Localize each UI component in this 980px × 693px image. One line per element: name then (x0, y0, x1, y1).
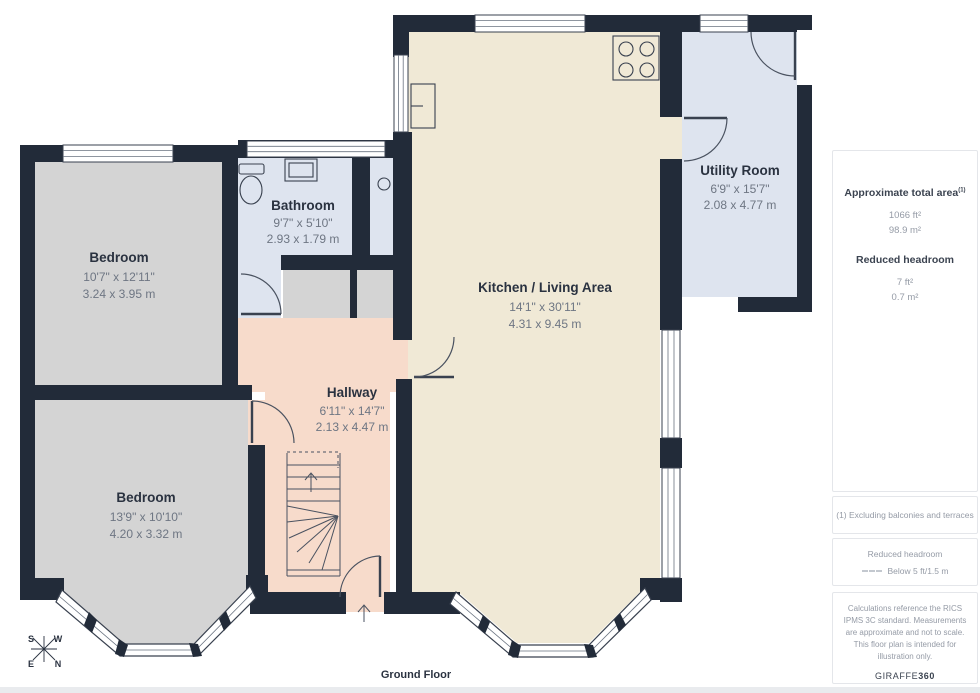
total-area-title: Approximate total area(1) (833, 187, 977, 199)
svg-text:Hallway: Hallway (327, 385, 378, 400)
room-label-bedroom-1: Bedroom 10'7" x 12'11" 3.24 x 3.95 m (83, 250, 156, 301)
room-fill-cupboard-2 (357, 270, 398, 318)
compass-w: W (54, 634, 63, 644)
disclaimer-panel: Calculations reference the RICS IPMS 3C … (832, 592, 978, 684)
svg-text:2.13 x 4.47 m: 2.13 x 4.47 m (316, 420, 389, 434)
room-label-utility: Utility Room 6'9" x 15'7" 2.08 x 4.77 m (700, 163, 780, 212)
window-bedroom-1-top (63, 145, 173, 162)
room-fills (35, 32, 797, 644)
room-fill-frontdoor-patch (346, 592, 384, 612)
svg-text:Bathroom: Bathroom (271, 198, 335, 213)
svg-text:10'7" x 12'11": 10'7" x 12'11" (83, 270, 155, 284)
window-kitchen-top (475, 15, 585, 32)
reduced-headroom-dash-icon (862, 570, 882, 572)
footnote-panel: (1) Excluding balconies and terraces (832, 496, 978, 534)
total-area-ft: 1066 ft² (833, 208, 977, 223)
window-bathroom-top (247, 141, 385, 157)
svg-text:Kitchen / Living Area: Kitchen / Living Area (478, 280, 612, 295)
room-fill-bathroom-nook (238, 255, 281, 318)
svg-text:2.93 x 1.79 m: 2.93 x 1.79 m (267, 232, 340, 246)
area-summary-panel: Approximate total area(1) 1066 ft² 98.9 … (832, 150, 978, 492)
reduced-headroom-m: 0.7 m² (833, 290, 977, 305)
svg-text:2.08 x 4.77 m: 2.08 x 4.77 m (704, 198, 777, 212)
window-kitchen-right-lower (662, 468, 680, 578)
room-fill-cupboard-1 (283, 270, 350, 318)
disclaimer-text: Calculations reference the RICS IPMS 3C … (842, 603, 968, 663)
room-fill-hallway-corridor (238, 318, 398, 392)
bottom-edge-strip (0, 687, 980, 693)
svg-text:6'9" x 15'7": 6'9" x 15'7" (710, 182, 769, 196)
svg-text:6'11" x 14'7": 6'11" x 14'7" (320, 404, 385, 418)
footnote-marker: (1) (958, 188, 965, 194)
room-label-bathroom: Bathroom 9'7" x 5'10" 2.93 x 1.79 m (267, 198, 340, 246)
reduced-headroom-title: Reduced headroom (833, 254, 977, 266)
svg-text:4.20 x 3.32 m: 4.20 x 3.32 m (110, 527, 183, 541)
compass-s: S (28, 634, 34, 644)
compass-n: N (55, 659, 62, 669)
reduced-headroom-ft: 7 ft² (833, 275, 977, 290)
brand-logo: GIRAFFE360 (842, 670, 968, 684)
footnote-text: (1) Excluding balconies and terraces (836, 510, 974, 520)
svg-text:4.31 x 9.45 m: 4.31 x 9.45 m (509, 317, 582, 331)
room-fill-utility-door-patch (658, 117, 682, 159)
room-label-bedroom-2: Bedroom 13'9" x 10'10" 4.20 x 3.32 m (110, 490, 183, 541)
svg-text:9'7" x 5'10": 9'7" x 5'10" (273, 216, 332, 230)
window-utility-top (700, 15, 748, 32)
floorplan-page: Bedroom 10'7" x 12'11" 3.24 x 3.95 m Bat… (0, 0, 980, 693)
legend-panel: Reduced headroom Below 5 ft/1.5 m (832, 538, 978, 586)
svg-text:Utility Room: Utility Room (700, 163, 780, 178)
svg-text:Bedroom: Bedroom (89, 250, 148, 265)
compass-icon: S W E N (28, 634, 63, 669)
compass-e: E (28, 659, 34, 669)
window-kitchen-right-upper (662, 330, 680, 438)
total-area-m: 98.9 m² (833, 223, 977, 238)
svg-text:3.24 x 3.95 m: 3.24 x 3.95 m (83, 287, 156, 301)
svg-text:Bedroom: Bedroom (116, 490, 175, 505)
legend-title: Reduced headroom (833, 549, 977, 559)
legend-item: Below 5 ft/1.5 m (888, 566, 949, 576)
window-kitchen-left (394, 55, 408, 132)
svg-text:14'1" x 30'11": 14'1" x 30'11" (509, 300, 581, 314)
svg-text:13'9" x 10'10": 13'9" x 10'10" (110, 510, 183, 524)
floor-label: Ground Floor (336, 669, 496, 681)
